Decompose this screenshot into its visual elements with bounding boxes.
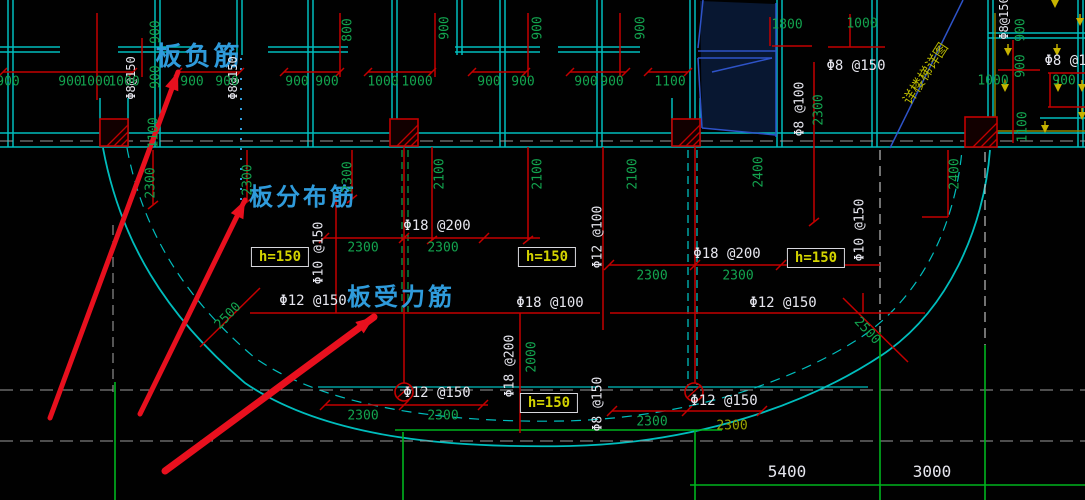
annotation-arrow: [140, 200, 245, 414]
cad-line: [843, 298, 908, 362]
slab-edge-curve: [127, 148, 962, 421]
slope-arrowhead: [1053, 48, 1061, 56]
slab-edge-curve: [103, 148, 990, 446]
annotation-arrow: [165, 317, 374, 471]
slope-arrowhead: [1078, 84, 1085, 92]
slope-arrowhead: [1051, 0, 1059, 8]
column-hatch-marker: [390, 119, 418, 146]
column-hatch-marker: [100, 119, 128, 146]
cad-line: [890, 0, 963, 148]
annotation-arrowhead: [231, 200, 245, 219]
slope-arrowhead: [1054, 84, 1062, 92]
column-hatch-marker: [965, 117, 997, 147]
cad-linework: [0, 0, 1085, 500]
slope-arrowhead: [1001, 84, 1009, 92]
stairwell-fill: [700, 1, 776, 136]
slope-arrowhead: [1078, 112, 1085, 120]
column-hatch-marker: [672, 119, 700, 146]
cad-drawing-viewport[interactable]: 板负筋 板分布筋 板受力筋 详楼梯详图Φ18 @200Φ18 @200Φ18 @…: [0, 0, 1085, 500]
annotation-arrowhead: [165, 72, 178, 91]
slope-arrowhead: [1004, 48, 1012, 56]
cad-line: [200, 288, 260, 347]
